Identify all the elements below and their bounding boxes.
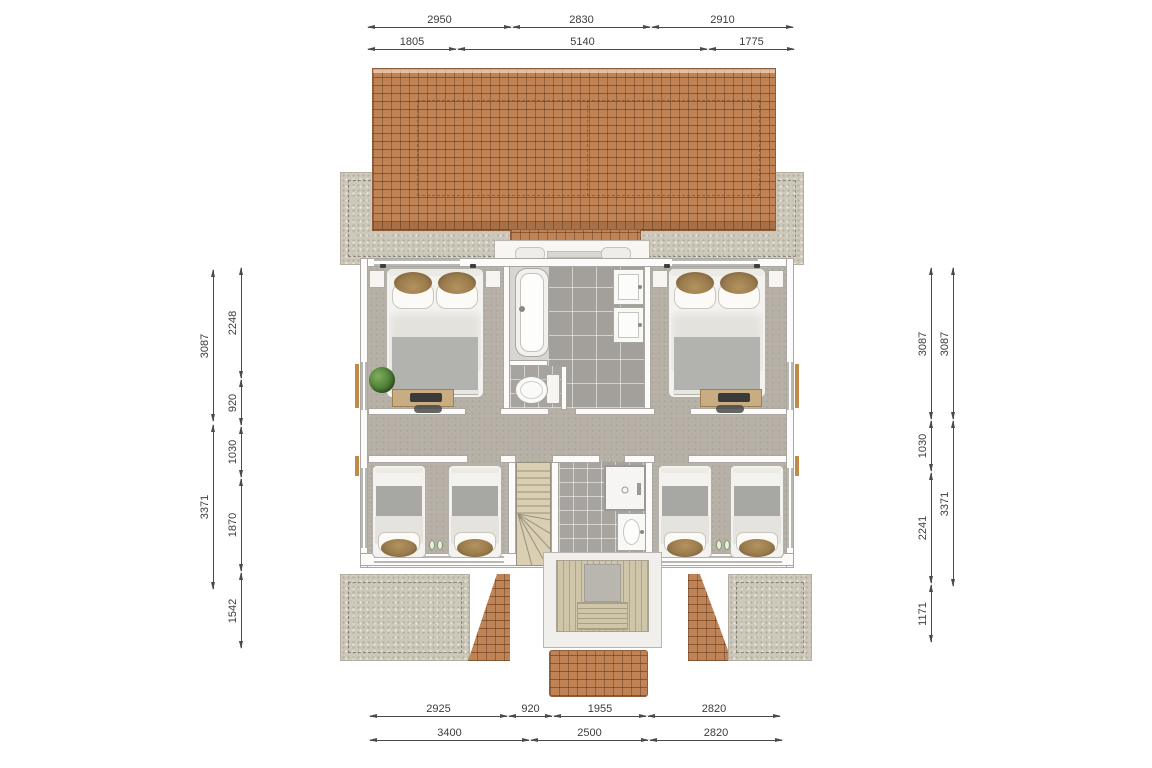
window-post xyxy=(355,364,359,408)
dimension-label: 3087 xyxy=(199,331,211,359)
dimension-label: 920 xyxy=(227,391,239,413)
dimension: 2925 xyxy=(370,716,507,717)
dimension-label: 2925 xyxy=(426,703,450,715)
toilet-tank xyxy=(546,374,560,404)
slippers-icon xyxy=(716,540,722,550)
shower-handle-icon xyxy=(637,483,641,495)
double-bed xyxy=(386,268,484,398)
dimension: 2241 xyxy=(931,473,932,583)
double-bed xyxy=(668,268,766,398)
blanket xyxy=(674,337,760,395)
dimension: 2248 xyxy=(241,268,242,378)
dimension: 3371 xyxy=(213,425,214,589)
faucet-icon xyxy=(519,306,525,312)
dimension: 1030 xyxy=(931,421,932,471)
dimension-label: 1030 xyxy=(917,432,929,460)
cushion xyxy=(667,539,703,557)
cushion xyxy=(381,539,417,557)
roof-ridge-dashed xyxy=(587,100,588,196)
dimension-label: 3087 xyxy=(939,329,951,357)
dimension: 920 xyxy=(241,380,242,425)
faucet-icon xyxy=(638,285,642,289)
faucet-icon xyxy=(638,323,642,327)
dimension: 1775 xyxy=(709,49,794,50)
terrace-slab-bottom-left xyxy=(340,574,470,661)
cushion xyxy=(720,272,758,294)
nightstand xyxy=(652,270,668,288)
cushion xyxy=(438,272,476,294)
wall-stair-left xyxy=(508,462,516,566)
single-bed xyxy=(448,465,502,558)
slippers-icon xyxy=(724,540,730,550)
dimension-label: 1805 xyxy=(400,36,424,48)
wall-wc-top xyxy=(509,360,548,366)
dimension-label: 3400 xyxy=(437,727,461,739)
dimension-label: 2830 xyxy=(569,14,593,26)
wall-lamp-icon xyxy=(380,264,386,268)
dimension: 3087 xyxy=(931,268,932,419)
dimension-label: 1542 xyxy=(227,596,239,624)
window-post xyxy=(795,456,799,476)
wall-bath-left xyxy=(503,266,510,410)
dimension-label: 2500 xyxy=(577,727,601,739)
nightstand xyxy=(369,270,385,288)
dimension: 1805 xyxy=(368,49,456,50)
roof-outline-dashed xyxy=(417,100,760,196)
cushion xyxy=(676,272,714,294)
hall-wall-bottom xyxy=(688,455,787,463)
dimension-label: 2820 xyxy=(702,703,726,715)
dimension-label: 3087 xyxy=(917,329,929,357)
dimension: 5140 xyxy=(458,49,707,50)
terrace-slab-bottom-right xyxy=(728,574,812,661)
dimension-label: 2241 xyxy=(917,514,929,542)
dimension: 1030 xyxy=(241,427,242,477)
cushion xyxy=(394,272,432,294)
dimension-label: 2950 xyxy=(427,14,451,26)
dimension: 1955 xyxy=(554,716,646,717)
staircase xyxy=(516,462,551,566)
washbasin xyxy=(617,513,646,551)
dimension-label: 3371 xyxy=(199,493,211,521)
dimension-label: 1171 xyxy=(917,600,929,628)
washbasin-cabinet xyxy=(613,307,644,343)
shower xyxy=(604,465,646,511)
hall-wall-top xyxy=(575,408,655,415)
single-bed xyxy=(372,465,426,558)
desk-chair xyxy=(414,405,442,413)
dimension-label: 1870 xyxy=(227,511,239,539)
balcony-mat xyxy=(584,564,621,602)
window-right-hall xyxy=(787,362,793,410)
hall-wall-bottom xyxy=(368,455,468,463)
dimension: 2820 xyxy=(648,716,780,717)
dimension: 2820 xyxy=(650,740,782,741)
laptop-icon xyxy=(410,393,442,402)
balcony-steps xyxy=(577,602,628,630)
wall-stair-right xyxy=(551,462,559,556)
dimension: 1870 xyxy=(241,479,242,571)
floor-plan: 2950 2830 2910 1805 5140 1775 2925 920 1… xyxy=(0,0,1152,768)
laptop-icon xyxy=(718,393,750,402)
nightstand xyxy=(768,270,784,288)
dimension-label: 1955 xyxy=(588,703,612,715)
dimension: 1542 xyxy=(241,573,242,648)
dimension: 3371 xyxy=(953,421,954,586)
hall-wall-bottom xyxy=(552,455,600,463)
cushion xyxy=(739,539,775,557)
toilet-icon xyxy=(515,376,548,404)
dimension-label: 2910 xyxy=(710,14,734,26)
window-top-right xyxy=(672,259,758,266)
window-post xyxy=(355,456,359,476)
single-bed xyxy=(658,465,712,558)
dimension: 2950 xyxy=(368,27,511,28)
hip-roof-right xyxy=(688,574,732,661)
dimension: 3087 xyxy=(953,268,954,419)
hip-roof-left xyxy=(468,574,510,661)
slippers-icon xyxy=(429,540,435,550)
dimension-label: 5140 xyxy=(570,36,594,48)
hall-wall-top xyxy=(500,408,549,415)
bathtub xyxy=(515,268,549,357)
faucet-icon xyxy=(640,530,644,534)
dimension-label: 2248 xyxy=(227,309,239,337)
desk-chair xyxy=(716,405,744,413)
washbasin-cabinet xyxy=(613,269,644,305)
wall-wc-right xyxy=(561,366,567,410)
dimension: 3087 xyxy=(213,270,214,421)
blanket xyxy=(392,337,478,395)
dimension-label: 3371 xyxy=(939,489,951,517)
dimension: 2830 xyxy=(513,27,650,28)
window-left-bottom xyxy=(361,468,367,548)
window-post xyxy=(795,364,799,408)
cushion xyxy=(457,539,493,557)
blanket xyxy=(376,486,422,520)
dimension: 2910 xyxy=(652,27,793,28)
lower-dormer-roof xyxy=(549,650,648,697)
blanket xyxy=(734,486,780,520)
dimension: 920 xyxy=(509,716,552,717)
wall-lowbath-right xyxy=(645,462,653,556)
window-top-left xyxy=(374,259,460,266)
blanket xyxy=(662,486,708,520)
wall-lamp-icon xyxy=(664,264,670,268)
window-right-bottom xyxy=(787,468,793,548)
dimension-label: 2820 xyxy=(704,727,728,739)
dimension-label: 1030 xyxy=(227,438,239,466)
dimension: 1171 xyxy=(931,585,932,642)
blanket xyxy=(452,486,498,520)
dimension-label: 1775 xyxy=(739,36,763,48)
dimension: 3400 xyxy=(370,740,529,741)
nightstand xyxy=(485,270,501,288)
dimension-label: 920 xyxy=(521,703,539,715)
wall-bath-right xyxy=(644,266,651,410)
window-left-hall xyxy=(361,362,367,410)
dimension: 2500 xyxy=(531,740,648,741)
slippers-icon xyxy=(437,540,443,550)
single-bed xyxy=(730,465,784,558)
